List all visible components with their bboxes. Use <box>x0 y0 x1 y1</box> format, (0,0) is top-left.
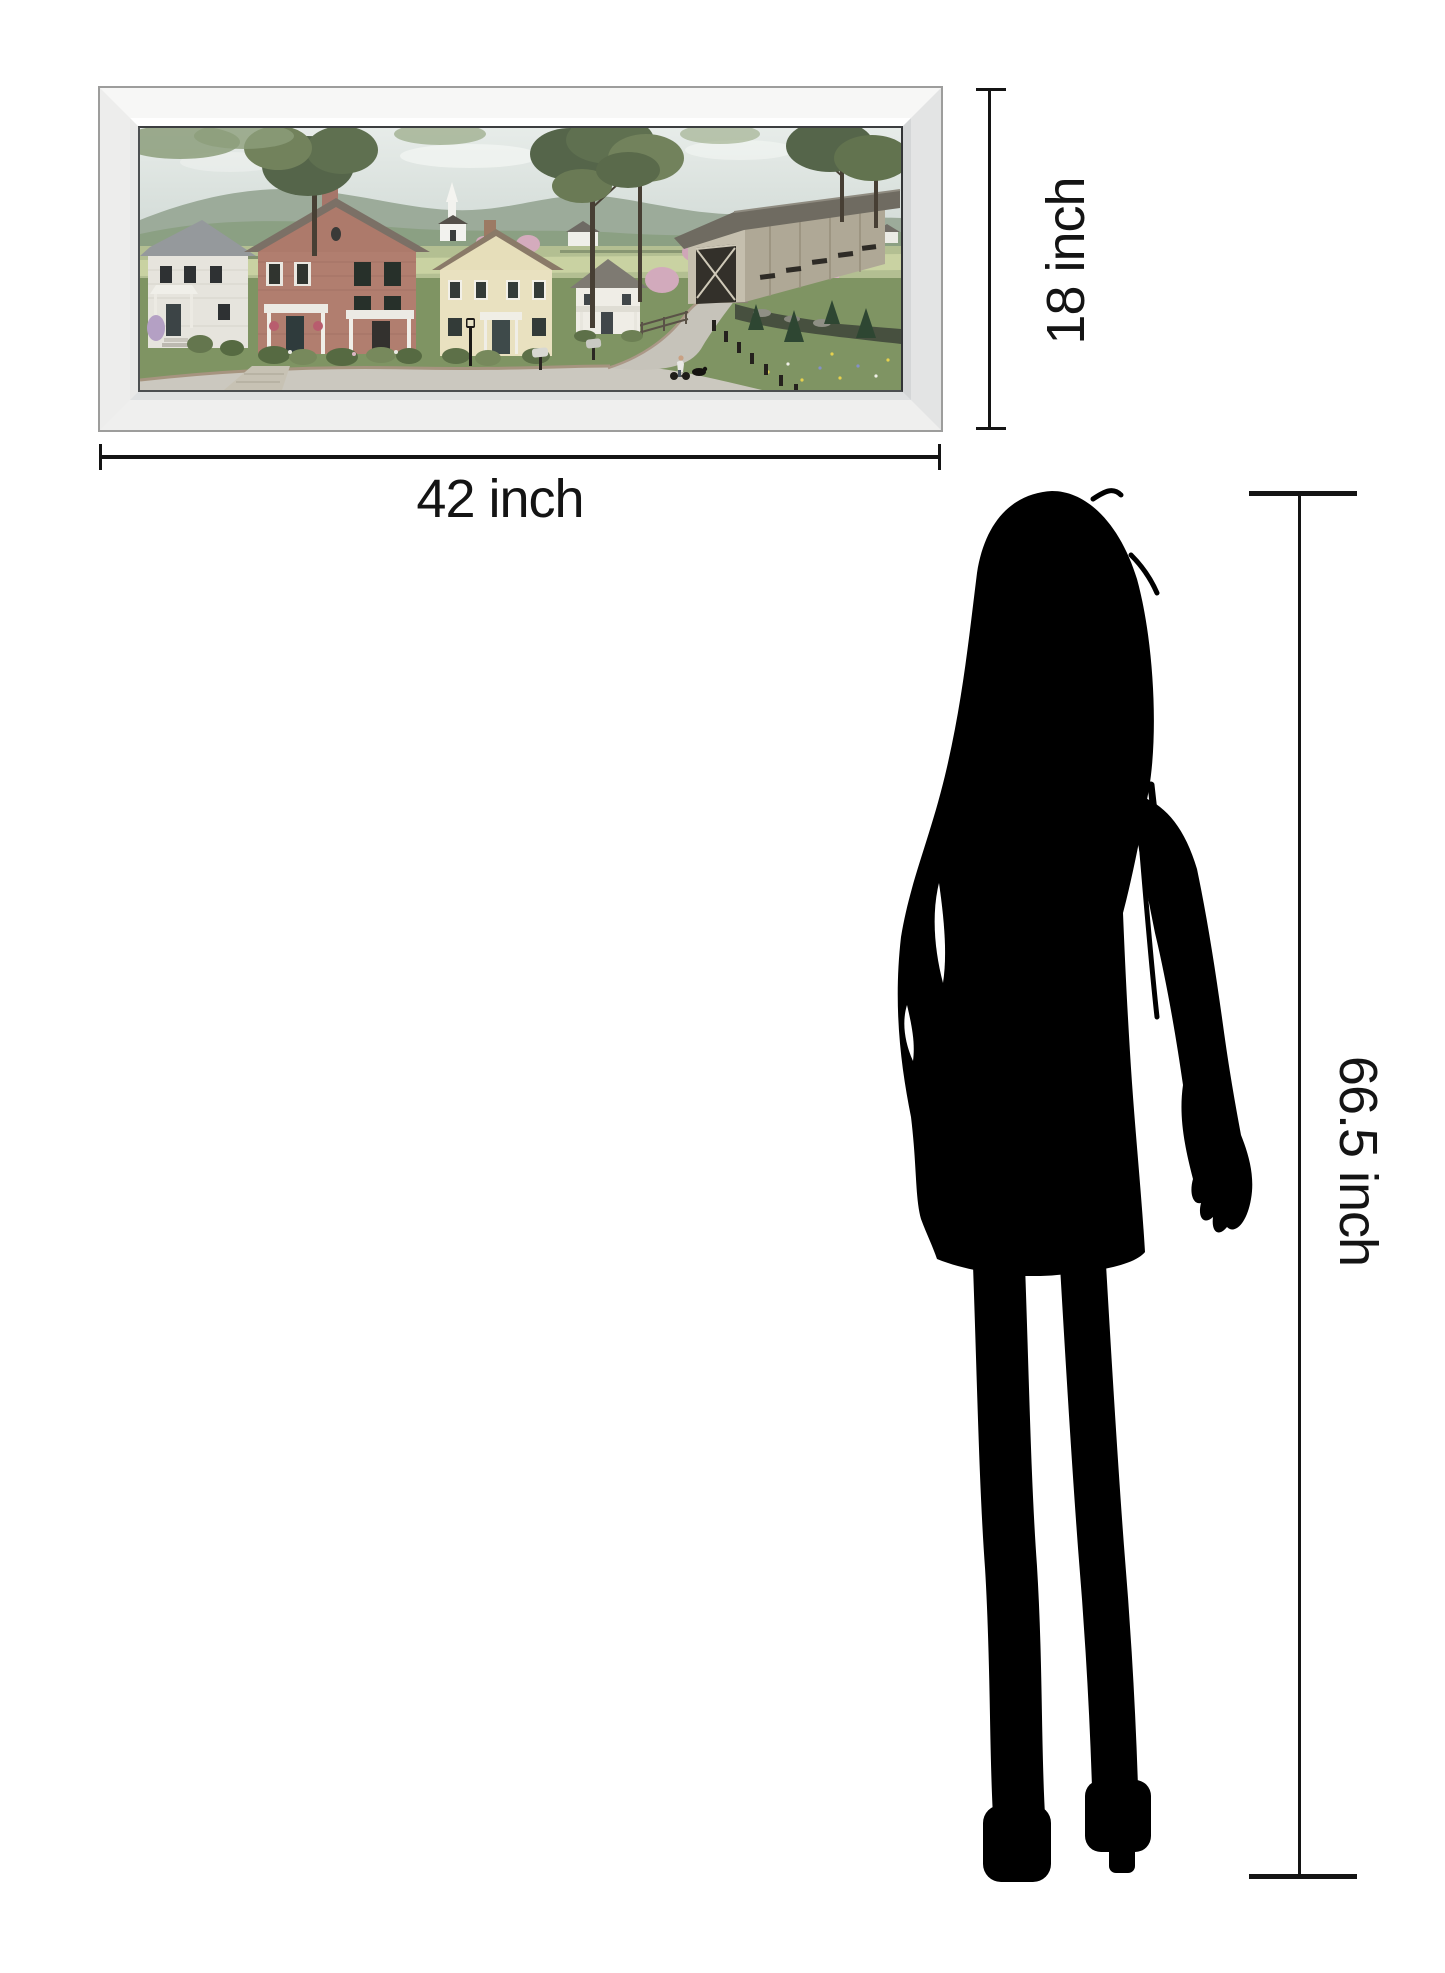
person-height-dimension-cap-top <box>1249 491 1357 496</box>
width-dimension-line <box>100 455 941 459</box>
artwork-painting <box>140 128 901 390</box>
width-dimension-tick-left <box>99 444 102 470</box>
person-height-dimension-line <box>1298 494 1301 1878</box>
frame-inner-liner <box>138 126 903 392</box>
height-dimension-cap-bottom <box>976 427 1006 430</box>
person-height-dimension-cap-bottom <box>1249 1874 1357 1879</box>
woman-silhouette <box>885 485 1265 1882</box>
height-dimension-cap-top <box>976 88 1006 91</box>
size-comparison-diagram: 18 inch 42 inch 66.5 inch <box>0 0 1445 1973</box>
person-height-dimension-label: 66.5 inch <box>1331 1056 1385 1266</box>
height-dimension-line <box>988 88 991 430</box>
frame-bevel <box>130 118 911 400</box>
height-dimension-label: 18 inch <box>1039 177 1093 344</box>
width-dimension-tick-right <box>938 444 941 470</box>
width-dimension-label: 42 inch <box>416 472 583 526</box>
framed-artwork <box>100 88 941 430</box>
